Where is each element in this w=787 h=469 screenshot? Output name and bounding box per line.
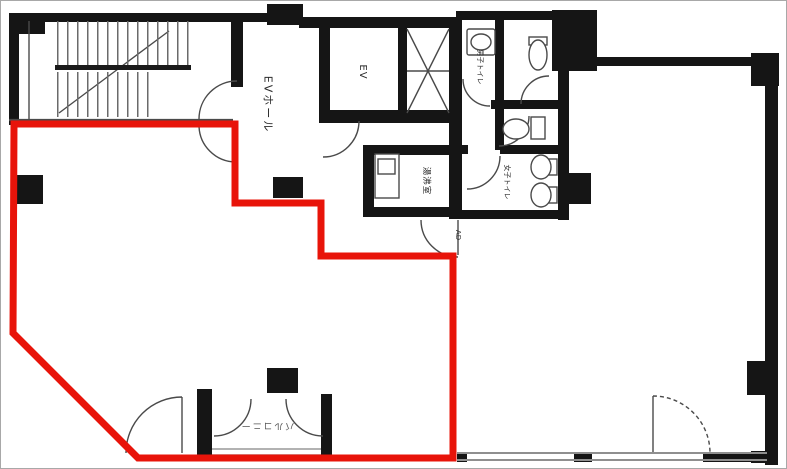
balcony-rail-lines (212, 449, 321, 455)
label-ev-hall: EVホール (261, 63, 276, 147)
womens-wc2-bowl (531, 183, 551, 207)
wall-ev-bottom (319, 110, 462, 123)
column-ev-hall (273, 177, 303, 198)
column-toilet-right (564, 173, 591, 204)
wall-toilet-mid-a (461, 145, 468, 154)
column-top (267, 4, 303, 25)
wall-vestibule-left (197, 389, 212, 455)
wall-left-upper (9, 13, 19, 125)
wall-stair-divider (231, 17, 243, 87)
wc-bowl (503, 119, 529, 139)
wall-ev-shaft (398, 28, 407, 113)
door-arc-ev-hall (323, 121, 359, 157)
label-mens-toilet: 男子トイレ (474, 43, 486, 91)
stair-treads-upper (57, 21, 189, 65)
urinal-bowl (529, 40, 547, 70)
wall-toilet-mid-b (500, 145, 560, 154)
label-kitchenette: 湯沸室 (419, 153, 433, 209)
column-right-mid (747, 361, 778, 395)
door-arc-womens (467, 156, 500, 189)
stair-landing-rail (55, 65, 191, 70)
wall-right-room-top (589, 57, 767, 66)
wall-vestibule-right (321, 394, 332, 455)
floor-plan: EVホール EV 湯沸室 男子トイレ 女子トイレ AD バルコニー (0, 0, 787, 469)
column-vestibule (267, 368, 298, 393)
wall-evhall-ev (319, 28, 330, 113)
womens-wc1-bowl (531, 155, 551, 179)
shaft-x-mark (407, 29, 449, 113)
wall-washroom-divider (495, 19, 504, 109)
door-arc-stairhall-lower (199, 125, 236, 162)
wall-toilet-bottom (454, 210, 569, 219)
wall-kitchen-bottom (363, 207, 455, 217)
wall-top-mid (299, 17, 461, 28)
column-left (14, 175, 43, 204)
label-womens-toilet: 女子トイレ (501, 158, 513, 206)
door-arc-urinal-room (521, 76, 549, 104)
wall-toilet-top (456, 11, 560, 20)
door-arc-bottom-left (126, 397, 182, 453)
stair-treads-lower (57, 72, 153, 117)
wc-tank (531, 117, 545, 139)
label-elevator: EV (355, 52, 369, 92)
label-duct: AD (453, 224, 463, 246)
wall-kitchen-left (363, 145, 374, 217)
door-arc-bottom-right (653, 396, 710, 453)
kitchen-sink (378, 159, 395, 174)
label-balcony: バルコニー (227, 418, 307, 431)
wall-right (765, 53, 778, 465)
